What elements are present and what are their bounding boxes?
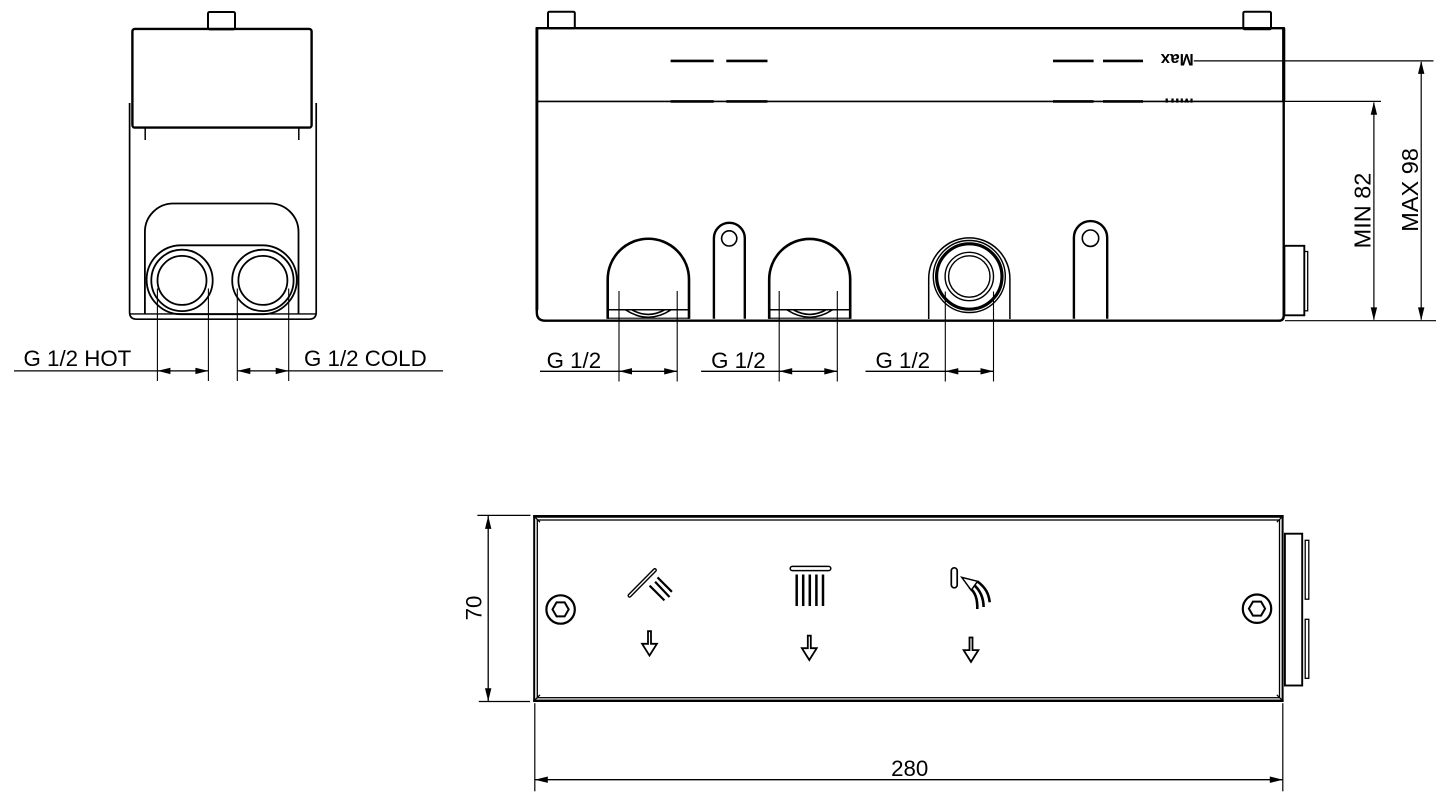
svg-text:G 1/2: G 1/2 <box>711 348 766 373</box>
svg-text:G 1/2: G 1/2 <box>876 348 931 373</box>
svg-text:G 1/2 HOT: G 1/2 HOT <box>24 346 132 371</box>
svg-text:MAX 98: MAX 98 <box>1397 148 1423 232</box>
svg-text:G 1/2 COLD: G 1/2 COLD <box>304 346 427 371</box>
svg-text:Max: Max <box>1160 50 1194 69</box>
svg-text:MIN 82: MIN 82 <box>1349 173 1375 249</box>
svg-text:G 1/2: G 1/2 <box>547 348 602 373</box>
svg-text:70: 70 <box>462 596 487 621</box>
svg-text:280: 280 <box>891 756 928 781</box>
